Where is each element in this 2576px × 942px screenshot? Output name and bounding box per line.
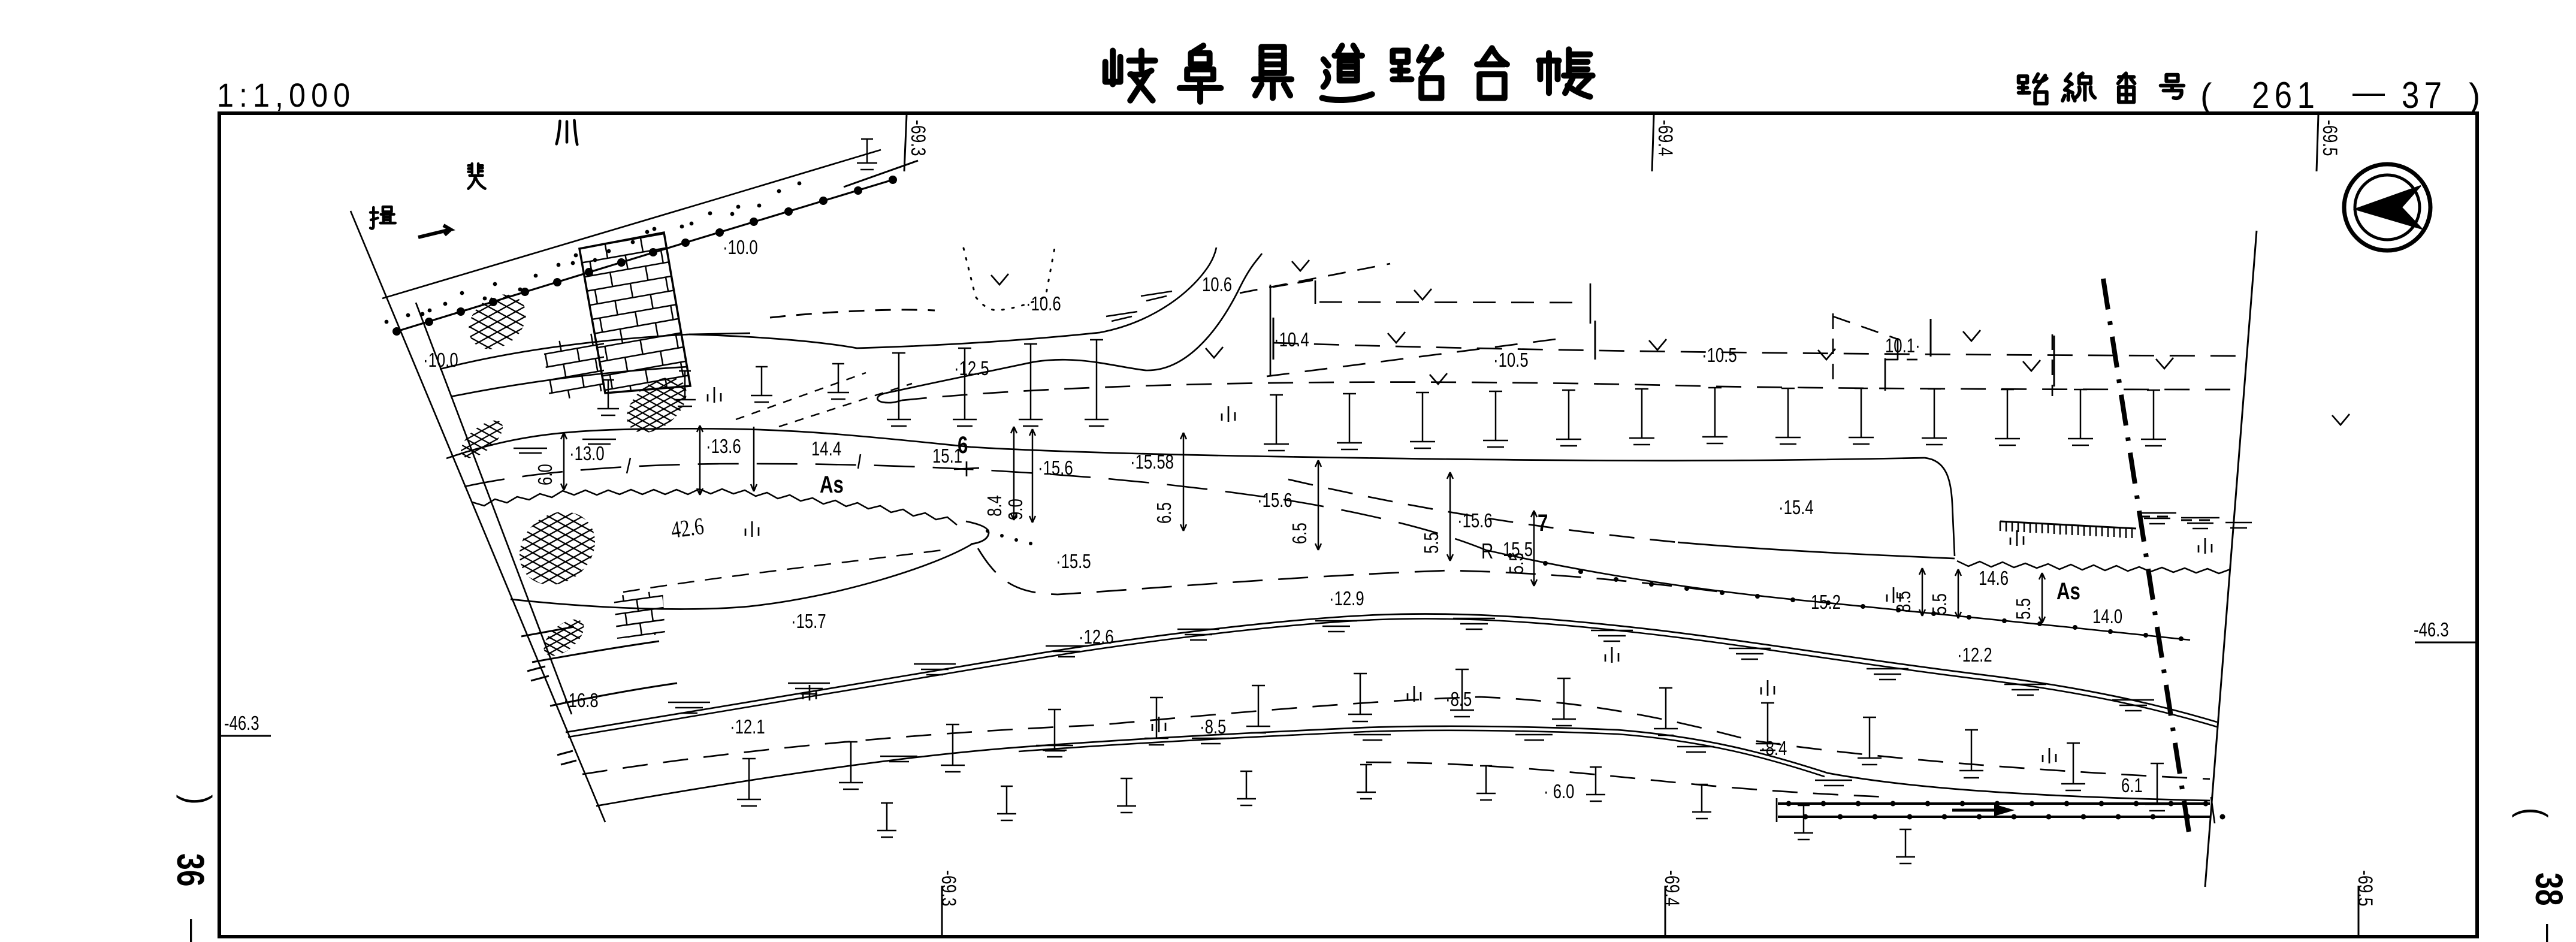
svg-text:·13.0: ·13.0: [569, 443, 605, 465]
svg-text:10.1·: 10.1·: [1885, 335, 1920, 357]
svg-text:5.5: 5.5: [2013, 598, 2035, 620]
svg-text:6.1: 6.1: [2121, 775, 2143, 797]
svg-text:·16.8: ·16.8: [563, 690, 599, 712]
svg-text:5.5: 5.5: [1929, 593, 1951, 615]
svg-text:36: 36: [169, 853, 212, 887]
svg-text:—: —: [2352, 74, 2385, 110]
svg-text:·10.5: ·10.5: [1702, 345, 1737, 367]
svg-text:-69.4: -69.4: [1660, 870, 1683, 906]
svg-text:·10.4: ·10.4: [1274, 329, 1309, 351]
svg-text:·12.1: ·12.1: [730, 716, 765, 738]
svg-text:·10.0: ·10.0: [423, 349, 458, 372]
svg-text:15.2: 15.2: [1811, 591, 1841, 614]
svg-text:—: —: [2533, 924, 2567, 942]
svg-text:As: As: [820, 471, 844, 498]
svg-text:·8.5: ·8.5: [1200, 716, 1226, 738]
svg-text:·13.6: ·13.6: [706, 436, 741, 458]
svg-text:R: R: [1481, 539, 1493, 563]
svg-text:5.5: 5.5: [1421, 532, 1443, 554]
svg-text:14.0: 14.0: [2092, 606, 2122, 628]
svg-text:14.4: 14.4: [811, 438, 841, 460]
svg-text:·10.0: ·10.0: [723, 237, 758, 259]
svg-text:·8.5: ·8.5: [1445, 689, 1472, 711]
svg-text:6: 6: [958, 431, 968, 458]
svg-text:14.6: 14.6: [1979, 567, 2009, 590]
svg-text:6.5: 6.5: [1153, 502, 1176, 524]
svg-text:1:1,000: 1:1,000: [217, 77, 355, 114]
svg-text:8.5: 8.5: [1893, 591, 1915, 612]
svg-text:·10.6: ·10.6: [1026, 293, 1061, 315]
svg-text:·15.6: ·15.6: [1457, 510, 1493, 532]
svg-text:): ): [176, 795, 219, 805]
svg-text:42.6: 42.6: [669, 512, 705, 544]
svg-text:·12.5: ·12.5: [954, 358, 989, 380]
svg-text:·12.9: ·12.9: [1329, 588, 1364, 610]
svg-text:·15.6: ·15.6: [1038, 457, 1073, 479]
svg-text:-69.3: -69.3: [937, 870, 960, 906]
svg-text:-69.3: -69.3: [907, 120, 929, 156]
svg-text:261: 261: [2252, 75, 2320, 116]
svg-text:38: 38: [2527, 872, 2570, 906]
svg-text:8.4: 8.4: [984, 495, 1006, 517]
svg-text:-69.5: -69.5: [2318, 120, 2341, 156]
svg-text:·15.5: ·15.5: [1056, 551, 1091, 573]
svg-text:(: (: [2200, 77, 2212, 116]
svg-text:9.0: 9.0: [1005, 499, 1027, 520]
svg-text:): ): [2469, 77, 2480, 116]
svg-text:7: 7: [1538, 509, 1548, 536]
svg-text:-69.5: -69.5: [2354, 870, 2376, 906]
svg-text:·15.4: ·15.4: [1778, 497, 1814, 519]
svg-text:As: As: [2056, 578, 2080, 605]
svg-text:-46.3: -46.3: [2414, 619, 2449, 641]
svg-text:-46.3: -46.3: [224, 712, 259, 735]
svg-text:—: —: [177, 919, 211, 942]
svg-text:37: 37: [2402, 75, 2447, 116]
svg-text:·12.6: ·12.6: [1079, 626, 1114, 648]
svg-text:-69.4: -69.4: [1654, 120, 1677, 156]
svg-text:6.0: 6.0: [534, 464, 557, 485]
svg-text:·10.5: ·10.5: [1493, 349, 1529, 372]
svg-text:·15.58: ·15.58: [1130, 451, 1174, 473]
svg-text:·12.2: ·12.2: [1957, 644, 1992, 666]
svg-text:10.6: 10.6: [1202, 274, 1232, 296]
svg-text:5.5: 5.5: [1506, 552, 1528, 574]
svg-text:·15.7: ·15.7: [791, 611, 826, 633]
svg-text:(: (: [2512, 808, 2554, 818]
svg-text:6.5: 6.5: [1289, 523, 1311, 544]
svg-text:· 6.0: · 6.0: [1544, 781, 1574, 803]
svg-text:·8.4: ·8.4: [1760, 738, 1787, 760]
svg-text:·15.6: ·15.6: [1257, 490, 1292, 512]
